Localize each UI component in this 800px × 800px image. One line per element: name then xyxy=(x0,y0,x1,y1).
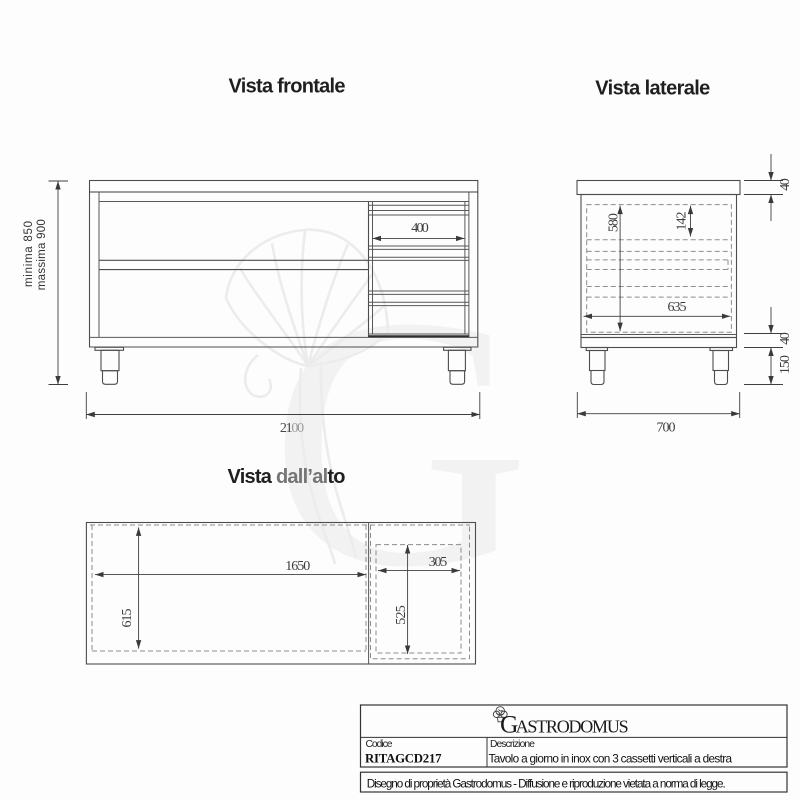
svg-text:RITAGCD217: RITAGCD217 xyxy=(365,751,442,765)
svg-text:142: 142 xyxy=(675,212,690,231)
svg-text:150: 150 xyxy=(778,355,793,374)
svg-text:Descrizione: Descrizione xyxy=(490,739,535,750)
svg-text:40: 40 xyxy=(778,178,793,191)
svg-text:635: 635 xyxy=(668,300,687,315)
svg-text:615: 615 xyxy=(120,609,135,628)
svg-text:massima 900: massima 900 xyxy=(36,219,48,290)
svg-text:400: 400 xyxy=(411,221,429,236)
svg-text:Codice: Codice xyxy=(366,739,393,750)
svg-text:Vista dall’alto: Vista dall’alto xyxy=(228,466,346,488)
svg-text:Tavolo a giorno in inox con 3: Tavolo a giorno in inox con 3 cassetti v… xyxy=(489,751,733,765)
svg-text:Vista laterale: Vista laterale xyxy=(595,78,710,100)
svg-text:Vista frontale: Vista frontale xyxy=(229,76,346,98)
svg-text:580: 580 xyxy=(607,213,622,232)
svg-text:305: 305 xyxy=(429,555,448,570)
svg-text:700: 700 xyxy=(657,421,676,436)
svg-text:Disegno di proprietà Gastrodom: Disegno di proprietà Gastrodomus - Diffu… xyxy=(367,777,726,790)
svg-text:1650: 1650 xyxy=(285,559,310,574)
svg-text:525: 525 xyxy=(394,605,409,625)
svg-text:40: 40 xyxy=(778,332,793,345)
svg-text:minima 850: minima 850 xyxy=(23,221,35,287)
svg-text:2100: 2100 xyxy=(280,421,304,436)
svg-text:ASTRODOMUS: ASTRODOMUS xyxy=(516,717,629,737)
